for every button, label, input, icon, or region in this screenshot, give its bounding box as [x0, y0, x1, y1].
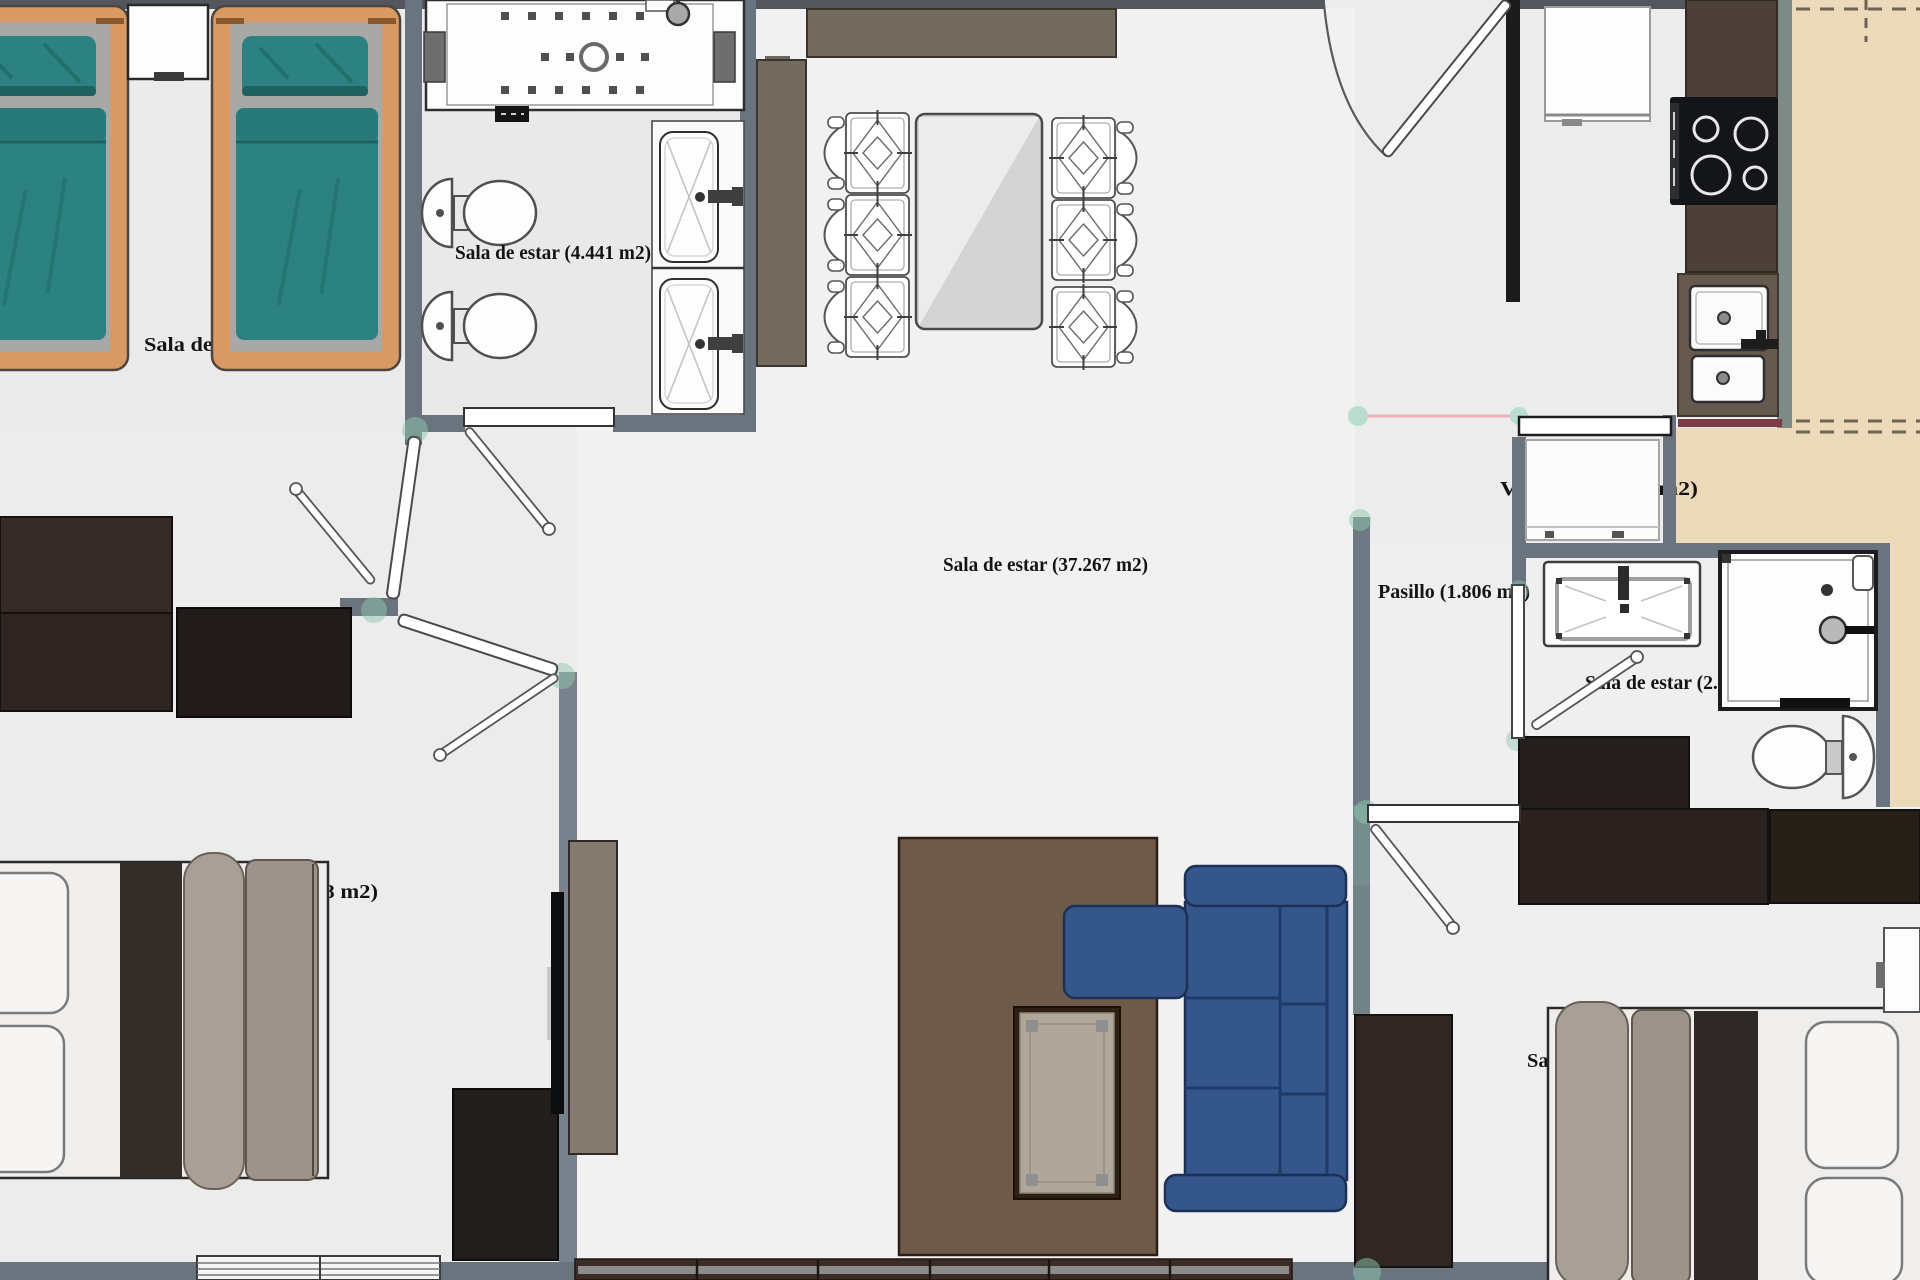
svg-text:Pasillo (1.806 m2): Pasillo (1.806 m2)	[1378, 581, 1530, 603]
svg-text:Sala de estar (37.267 m2): Sala de estar (37.267 m2)	[943, 554, 1148, 576]
svg-text:Sala de estar (4.441 m2): Sala de estar (4.441 m2)	[455, 242, 651, 264]
